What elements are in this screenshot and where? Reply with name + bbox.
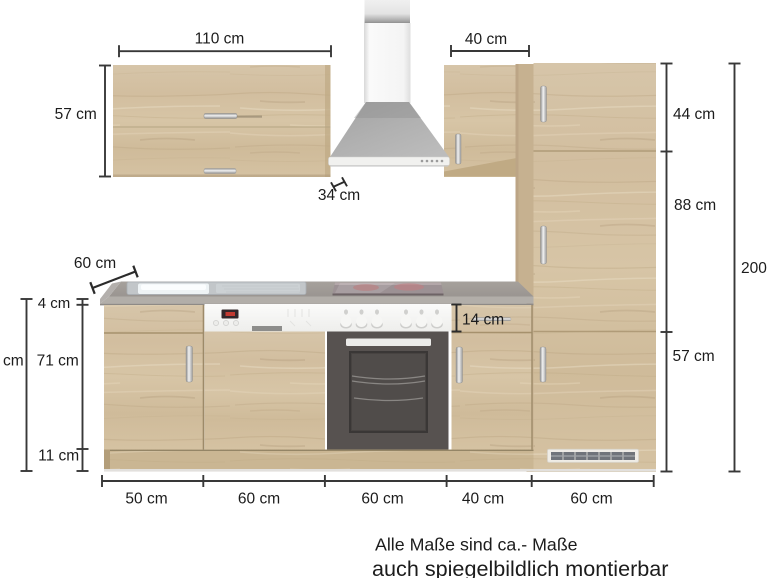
svg-text:60 cm: 60 cm (570, 491, 612, 508)
svg-text:110 cm: 110 cm (195, 31, 245, 48)
svg-text:57 cm: 57 cm (55, 106, 97, 123)
svg-text:40 cm: 40 cm (465, 31, 507, 48)
svg-text:71 cm: 71 cm (37, 353, 79, 370)
svg-text:50 cm: 50 cm (125, 491, 167, 508)
svg-text:200 cm: 200 cm (741, 260, 770, 277)
svg-text:4 cm: 4 cm (38, 295, 71, 312)
svg-text:40 cm: 40 cm (462, 491, 504, 508)
svg-text:57 cm: 57 cm (673, 348, 715, 365)
svg-text:14 cm: 14 cm (462, 312, 504, 329)
svg-text:60 cm: 60 cm (238, 491, 280, 508)
svg-text:44 cm: 44 cm (673, 106, 715, 123)
svg-text:60 cm: 60 cm (74, 255, 116, 272)
svg-text:34 cm: 34 cm (318, 187, 360, 204)
svg-text:60 cm: 60 cm (361, 491, 403, 508)
svg-text:cm: cm (3, 353, 24, 370)
svg-text:Alle Maße sind ca.- Maße: Alle Maße sind ca.- Maße (375, 535, 578, 555)
svg-text:auch spiegelbildlich montierba: auch spiegelbildlich montierbar (372, 556, 668, 578)
svg-text:11 cm: 11 cm (38, 448, 79, 465)
svg-text:88 cm: 88 cm (674, 197, 716, 214)
